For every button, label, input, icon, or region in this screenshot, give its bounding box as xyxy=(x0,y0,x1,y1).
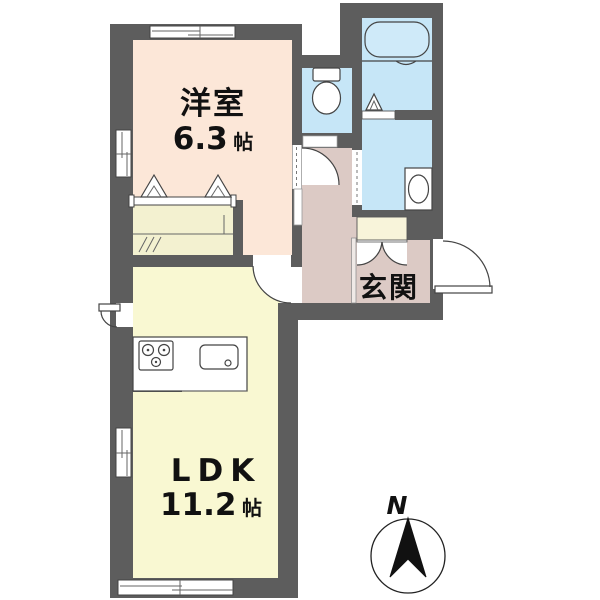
kitchen-sink-icon xyxy=(200,345,238,369)
wall-closet-stub xyxy=(233,200,243,255)
shoe-cabinet-icon xyxy=(357,217,407,240)
genkan-step-icon xyxy=(352,238,357,303)
window-left-ldk-icon xyxy=(116,428,131,477)
toilet-bowl-icon xyxy=(313,68,341,114)
wall-washroom-bottom xyxy=(352,210,443,217)
wall-bath-right xyxy=(432,3,443,217)
washbasin-icon xyxy=(405,168,432,210)
wall-bath-top xyxy=(340,3,443,18)
genkan-label: 玄関 xyxy=(359,271,419,304)
floor-plan-drawing: N 洋室 6.3 帖 LDK 11.2 帖 玄関 xyxy=(0,0,600,600)
window-top-icon xyxy=(150,26,235,38)
toilet-door-icon xyxy=(303,136,337,147)
window-left-western-icon xyxy=(116,130,131,177)
north-compass-icon: N xyxy=(371,491,445,593)
kitchen-stove-icon xyxy=(139,341,173,370)
western-room-label: 洋室 xyxy=(180,86,246,122)
washroom-sliding-door-icon xyxy=(352,150,362,205)
window-bottom-icon xyxy=(118,580,233,595)
compass-north-label: N xyxy=(387,491,408,520)
ldk-floor xyxy=(132,255,280,578)
ldk-size-unit: 帖 xyxy=(242,496,262,520)
ldk-size-value: 11.2 xyxy=(160,487,237,523)
western-room-size-unit: 帖 xyxy=(233,130,253,154)
entrance-door-icon xyxy=(433,239,492,293)
wall-ldk-right xyxy=(278,303,298,598)
wall-genkan-upper-right xyxy=(407,217,443,240)
floor-plan: N 洋室 6.3 帖 LDK 11.2 帖 玄関 xyxy=(0,0,600,600)
western-room-size-value: 6.3 xyxy=(173,121,228,157)
ldk-label: LDK xyxy=(171,453,262,489)
service-door-icon xyxy=(99,303,133,327)
wall-bath-divider xyxy=(395,110,432,120)
wall-genkan-bottom xyxy=(278,303,443,320)
